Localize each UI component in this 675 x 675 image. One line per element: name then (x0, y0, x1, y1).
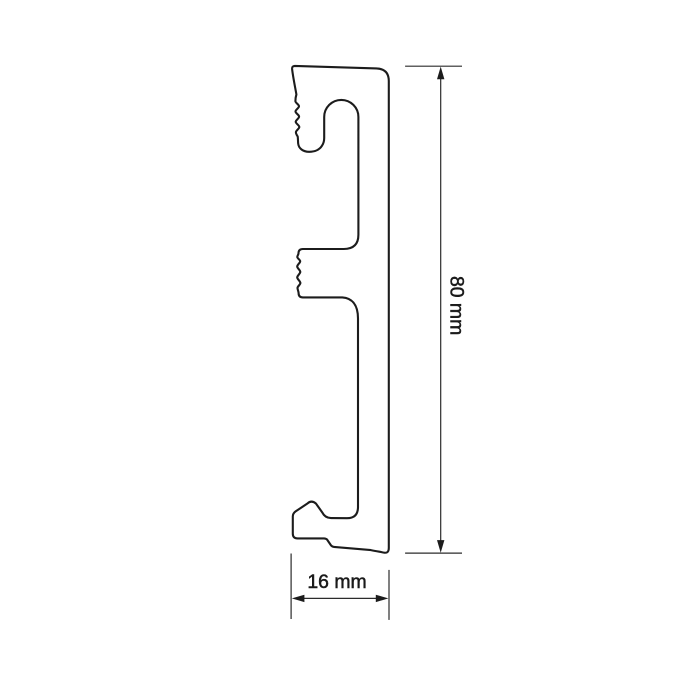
svg-text:16 mm: 16 mm (307, 571, 366, 593)
svg-text:80 mm: 80 mm (446, 276, 468, 335)
